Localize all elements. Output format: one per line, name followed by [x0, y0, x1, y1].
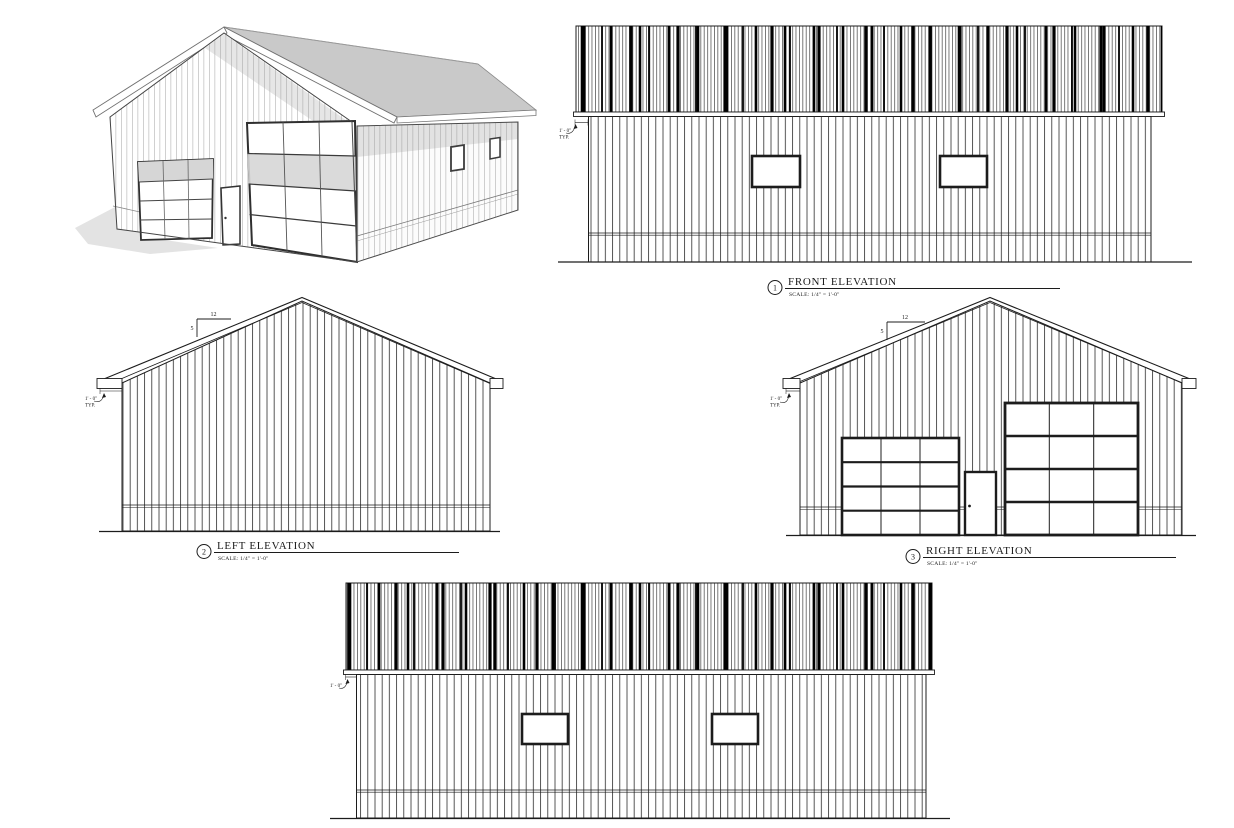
left-eave-ear-right	[490, 379, 503, 389]
right-elevation-view: 12 5 1' - 0" TYP. 3 RIGHT ELEVATION SCAL…	[770, 298, 1196, 568]
perspective-view	[75, 27, 536, 262]
right-slope-run: 12	[902, 315, 908, 321]
front-title: FRONT ELEVATION	[788, 276, 897, 288]
rear-window-2	[712, 714, 758, 744]
front-roof-ribs-bold2	[576, 26, 1162, 112]
side-window-2-3d	[490, 138, 500, 160]
elevations-drawing: 1' - 0" TYP. 1 FRONT ELEVATION SCALE: 1/…	[0, 0, 1234, 828]
rear-eave-note: 1' - 0"	[330, 674, 357, 689]
right-eave-ear-right	[1182, 379, 1196, 389]
left-view-number: 2	[202, 548, 206, 557]
left-slope-run: 12	[211, 312, 217, 318]
drawing-sheet: 1' - 0" TYP. 1 FRONT ELEVATION SCALE: 1/…	[0, 0, 1234, 828]
rear-elevation-view: 1' - 0"	[330, 583, 950, 819]
garage-door-small-glass-3d	[138, 159, 213, 182]
garage-door-large-3d	[247, 121, 357, 262]
front-elevation-view: 1' - 0" TYP. 1 FRONT ELEVATION SCALE: 1/…	[558, 26, 1192, 298]
front-window-1	[752, 156, 800, 187]
front-wall-siding	[589, 117, 1152, 263]
left-slope-indicator: 12 5	[191, 312, 232, 337]
right-slope-rise: 5	[881, 329, 884, 335]
left-wall-siding	[122, 301, 490, 531]
right-man-door-knob	[968, 505, 971, 508]
left-title-block: 2 LEFT ELEVATION SCALE: 1/4" = 1'-0"	[197, 540, 459, 562]
rear-wall-siding	[357, 675, 927, 819]
left-eave-note: 1' - 0" TYP.	[85, 388, 122, 409]
rear-roof-ribs-bold2	[346, 583, 932, 670]
right-garage-door-large	[1005, 403, 1138, 535]
right-view-number: 3	[911, 553, 915, 562]
rear-eave-fascia	[344, 670, 935, 675]
door-knob-3d	[224, 217, 226, 219]
right-title-block: 3 RIGHT ELEVATION SCALE: 1/4" = 1'-0"	[906, 545, 1176, 567]
right-eave-typ-text: TYP.	[770, 404, 780, 409]
side-window-1-3d	[451, 145, 464, 171]
left-scale-label: SCALE: 1/4" = 1'-0"	[218, 556, 269, 562]
front-eave-typ-text: TYP.	[559, 136, 569, 141]
front-window-2	[940, 156, 987, 187]
side-wall-3d	[357, 122, 518, 262]
rear-eave-dim-text: 1' - 0"	[330, 684, 342, 689]
left-slope-rise: 5	[191, 326, 194, 332]
left-title: LEFT ELEVATION	[217, 540, 315, 552]
right-scale-label: SCALE: 1/4" = 1'-0"	[927, 561, 978, 567]
right-eave-note: 1' - 0" TYP.	[770, 388, 800, 409]
man-door-3d	[221, 186, 240, 245]
front-scale-label: SCALE: 1/4" = 1'-0"	[789, 292, 840, 298]
front-title-block: 1 FRONT ELEVATION SCALE: 1/4" = 1'-0"	[768, 276, 1060, 298]
left-eave-typ-text: TYP.	[85, 404, 95, 409]
left-eave-dim-text: 1' - 0"	[85, 397, 97, 402]
left-elevation-view: 12 5 1' - 0" TYP. 2 LEFT ELEVATION SCALE…	[85, 298, 503, 563]
right-eave-dim-text: 1' - 0"	[770, 397, 782, 402]
garage-door-small-3d	[138, 159, 213, 240]
front-eave-dim-text: 1' - 0"	[559, 129, 571, 134]
right-title: RIGHT ELEVATION	[926, 545, 1032, 557]
rear-window-1	[522, 714, 568, 744]
front-eave-fascia	[574, 112, 1165, 117]
right-garage-door-small	[842, 438, 959, 535]
front-view-number: 1	[773, 284, 777, 293]
left-eave-ear-left	[97, 379, 122, 389]
right-man-door	[965, 472, 996, 535]
front-eave-note: 1' - 0" TYP.	[559, 120, 588, 141]
right-eave-ear-left	[783, 379, 800, 389]
